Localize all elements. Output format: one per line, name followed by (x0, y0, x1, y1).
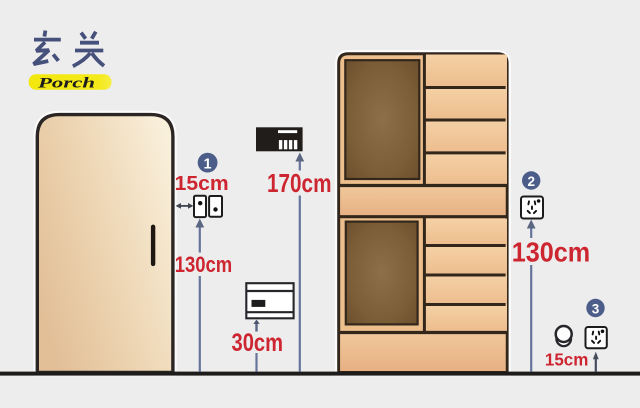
svg-text:30cm: 30cm (232, 329, 284, 357)
svg-text:170cm: 170cm (267, 168, 332, 198)
svg-text:3: 3 (592, 302, 600, 317)
svg-text:2: 2 (527, 174, 535, 189)
svg-text:15cm: 15cm (175, 173, 229, 195)
svg-text:Porch: Porch (38, 75, 95, 91)
svg-text:15cm: 15cm (545, 350, 589, 370)
svg-text:1: 1 (204, 156, 212, 172)
svg-text:130cm: 130cm (512, 237, 591, 268)
svg-text:130cm: 130cm (175, 252, 233, 277)
